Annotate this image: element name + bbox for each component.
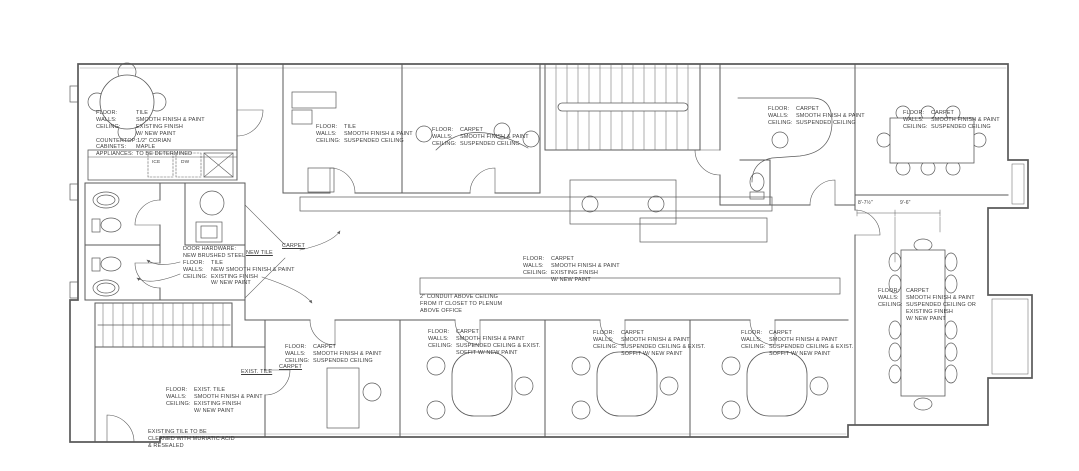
annotation-label: CEILING: xyxy=(741,344,769,358)
annotation-row: CEILING:EXISTING FINISH W/ NEW PAINT xyxy=(523,270,620,284)
annotation-label: FLOOR: xyxy=(316,124,344,131)
room-annotation-conference-right: FLOOR:CARPET WALLS:SMOOTH FINISH & PAINT… xyxy=(878,288,976,322)
dishwasher-label: DW xyxy=(181,160,189,165)
room-annotation-office-bottom-1: FLOOR:CARPET WALLS:SMOOTH FINISH & PAINT… xyxy=(285,344,382,365)
desk xyxy=(327,368,359,428)
annotation-value: SUSPENDED CEILING & EXIST. SOFFIT W/ NEW… xyxy=(621,344,705,358)
annotation-value: MAPLE xyxy=(136,144,155,151)
annotation-label: WALLS: xyxy=(183,267,211,274)
annotation-value: CARPET xyxy=(769,330,792,337)
annotation-label: NEW BRUSHED STEEL xyxy=(183,253,245,260)
annotation-label: CEILING: xyxy=(428,343,456,357)
chair xyxy=(363,383,381,401)
annotation-label: FLOOR: xyxy=(523,256,551,263)
chair xyxy=(427,357,445,375)
annotation-label: WALLS: xyxy=(432,134,460,141)
annotation-row: FLOOR:TILE xyxy=(183,260,295,267)
chair xyxy=(889,321,901,339)
annotation-row: COUNTERTOP:1/2" CORIAN xyxy=(96,138,205,145)
room-annotation-entry: FLOOR:EXIST. TILE WALLS:SMOOTH FINISH & … xyxy=(166,387,263,415)
cabinet xyxy=(292,110,312,124)
room-annotation-corridor: FLOOR:CARPET WALLS:SMOOTH FINISH & PAINT… xyxy=(523,256,620,284)
annotation-value: EXISTING FINISH W/ NEW PAINT xyxy=(194,401,241,415)
ice-maker-label: ICE xyxy=(152,160,160,165)
annotation-label: WALLS: xyxy=(878,295,906,302)
annotation-label: FLOOR: xyxy=(428,329,456,336)
chair xyxy=(889,365,901,383)
annotation-row: FLOOR:CARPET xyxy=(903,110,1000,117)
conference-table-right xyxy=(889,239,957,410)
annotation-row: WALLS:SMOOTH FINISH & PAINT xyxy=(593,337,705,344)
annotation-row: CEILING:SUSPENDED CEILING xyxy=(432,141,529,148)
annotation-value: SMOOTH FINISH & PAINT xyxy=(460,134,529,141)
annotation-row: FLOOR:CARPET xyxy=(878,288,976,295)
chair xyxy=(945,343,957,361)
annotation-label: CEILING: xyxy=(166,401,194,415)
annotation-label: DOOR HARDWARE: xyxy=(183,246,236,253)
room-annotation-office-top-1: FLOOR:TILE WALLS:SMOOTH FINISH & PAINT C… xyxy=(316,124,413,145)
muriatic-acid-note: EXISTING TILE TO BE CLEANED WITH MURIATI… xyxy=(148,429,235,450)
annotation-value: CARPET xyxy=(931,110,954,117)
annotation-row: NEW BRUSHED STEEL xyxy=(183,253,295,260)
chair xyxy=(660,377,678,395)
annotation-value: CARPET xyxy=(906,288,929,295)
chair xyxy=(810,377,828,395)
room-annotation-break-room: FLOOR:TILE WALLS:SMOOTH FINISH & PAINT C… xyxy=(96,110,205,158)
annotation-row: APPLIANCES:TO BE DETERMINED xyxy=(96,151,205,158)
annotation-value: EXISTING FINISH W/ NEW PAINT xyxy=(211,274,258,288)
annotation-value: SMOOTH FINISH & PAINT xyxy=(194,394,263,401)
annotation-row: CABINETS:MAPLE xyxy=(96,144,205,151)
annotation-row: WALLS:SMOOTH FINISH & PAINT xyxy=(741,337,853,344)
desk xyxy=(747,352,807,416)
annotation-label: CEILING: xyxy=(523,270,551,284)
annotation-row: WALLS:SMOOTH FINISH & PAINT xyxy=(316,131,413,138)
annotation-value: SMOOTH FINISH & PAINT xyxy=(906,295,975,302)
room-annotation-reception: FLOOR:CARPET WALLS:SMOOTH FINISH & PAINT… xyxy=(768,106,865,127)
annotation-label: WALLS: xyxy=(523,263,551,270)
conduit-note: 2" CONDUIT ABOVE CEILING FROM IT CLOSET … xyxy=(420,294,502,315)
annotation-value: CARPET xyxy=(796,106,819,113)
credenza xyxy=(292,92,336,108)
annotation-label: FLOOR: xyxy=(593,330,621,337)
chair xyxy=(877,133,891,147)
annotation-value: CARPET xyxy=(456,329,479,336)
room-annotation-office-top-2: FLOOR:CARPET WALLS:SMOOTH FINISH & PAINT… xyxy=(432,127,529,148)
room-annotation-conference-top: FLOOR:CARPET WALLS:SMOOTH FINISH & PAINT… xyxy=(903,110,1000,131)
annotation-label: FLOOR: xyxy=(183,260,211,267)
annotation-row: WALLS:NEW SMOOTH FINISH & PAINT xyxy=(183,267,295,274)
annotation-label: FLOOR: xyxy=(878,288,906,295)
chair xyxy=(889,343,901,361)
annotation-label: CEILING: xyxy=(96,124,136,138)
toilet xyxy=(92,219,100,232)
annotation-value: SUSPENDED CEILING xyxy=(313,358,373,365)
annotation-label: WALLS: xyxy=(428,336,456,343)
floor-plan-drawing xyxy=(0,0,1079,471)
annotation-row: CEILING:SUSPENDED CEILING & EXIST. SOFFI… xyxy=(593,344,705,358)
annotation-value: SMOOTH FINISH & PAINT xyxy=(796,113,865,120)
annotation-row: FLOOR:TILE xyxy=(316,124,413,131)
annotation-label: FLOOR: xyxy=(432,127,460,134)
chair xyxy=(648,196,664,212)
annotation-row: CEILING:SUSPENDED CEILING xyxy=(768,120,865,127)
annotation-value: CARPET xyxy=(551,256,574,263)
annotation-label: FLOOR: xyxy=(96,110,136,117)
annotation-row: WALLS:SMOOTH FINISH & PAINT xyxy=(166,394,263,401)
dimension-label-2: 9'-6" xyxy=(900,200,910,206)
annotation-label: CEILING: xyxy=(768,120,796,127)
annotation-row: FLOOR:CARPET xyxy=(428,329,540,336)
annotation-label: FLOOR: xyxy=(166,387,194,394)
annotation-row: FLOOR:CARPET xyxy=(593,330,705,337)
annotation-row: WALLS:SMOOTH FINISH & PAINT xyxy=(285,351,382,358)
annotation-row: CEILING:EXISTING FINISH W/ NEW PAINT xyxy=(96,124,205,138)
annotation-row: WALLS:SMOOTH FINISH & PAINT xyxy=(523,263,620,270)
annotation-value: SMOOTH FINISH & PAINT xyxy=(621,337,690,344)
chair xyxy=(572,401,590,419)
annotation-label: WALLS: xyxy=(903,117,931,124)
annotation-label: WALLS: xyxy=(768,113,796,120)
annotation-row: FLOOR:EXIST. TILE xyxy=(166,387,263,394)
annotation-value: SUSPENDED CEILING xyxy=(344,138,404,145)
annotation-label: FLOOR: xyxy=(741,330,769,337)
annotation-row: CEILING:SUSPENDED CEILING xyxy=(316,138,413,145)
annotation-row: WALLS:SMOOTH FINISH & PAINT xyxy=(96,117,205,124)
chair xyxy=(582,196,598,212)
annotation-value: SUSPENDED CEILING xyxy=(460,141,520,148)
annotation-label: WALLS: xyxy=(96,117,136,124)
room-annotation-office-bottom-2: FLOOR:CARPET WALLS:SMOOTH FINISH & PAINT… xyxy=(428,329,540,357)
annotation-value: EXISTING FINISH W/ NEW PAINT xyxy=(551,270,598,284)
annotation-label: CEILING: xyxy=(903,124,931,131)
annotation-row: WALLS:SMOOTH FINISH & PAINT xyxy=(768,113,865,120)
room-annotation-office-bottom-4: FLOOR:CARPET WALLS:SMOOTH FINISH & PAINT… xyxy=(741,330,853,358)
floor-label-carpet-upper: CARPET xyxy=(282,243,305,249)
annotation-value: 1/2" CORIAN xyxy=(137,138,171,145)
bay-window xyxy=(1012,164,1024,204)
table xyxy=(901,250,945,396)
annotation-value: TILE xyxy=(344,124,356,131)
annotation-value: TILE xyxy=(136,110,148,117)
annotation-value: EXISTING FINISH W/ NEW PAINT xyxy=(136,124,183,138)
annotation-value: EXIST. TILE xyxy=(194,387,225,394)
stairs-top xyxy=(556,64,688,150)
annotation-row: CEILING:EXISTING FINISH W/ NEW PAINT xyxy=(183,274,295,288)
annotation-label: CEILING: xyxy=(316,138,344,145)
annotation-value: SUSPENDED CEILING xyxy=(796,120,856,127)
annotation-value: SMOOTH FINISH & PAINT xyxy=(931,117,1000,124)
annotation-value: SUSPENDED CEILING OR EXISTING FINISH W/ … xyxy=(906,302,976,323)
annotation-label: COUNTERTOP: xyxy=(96,138,137,145)
annotation-value: SMOOTH FINISH & PAINT xyxy=(456,336,525,343)
annotation-label: WALLS: xyxy=(593,337,621,344)
annotation-row: FLOOR:CARPET xyxy=(285,344,382,351)
annotation-row: FLOOR:CARPET xyxy=(768,106,865,113)
stairs-bottom xyxy=(98,303,230,347)
annotation-row: DOOR HARDWARE: xyxy=(183,246,295,253)
annotation-label: WALLS: xyxy=(166,394,194,401)
annotation-value: SMOOTH FINISH & PAINT xyxy=(769,337,838,344)
annotation-value: SUSPENDED CEILING xyxy=(931,124,991,131)
annotation-value: SMOOTH FINISH & PAINT xyxy=(313,351,382,358)
annotation-label: APPLIANCES: xyxy=(96,151,136,158)
annotation-label: WALLS: xyxy=(741,337,769,344)
annotation-row: WALLS:SMOOTH FINISH & PAINT xyxy=(878,295,976,302)
annotation-value: CARPET xyxy=(460,127,483,134)
annotation-value: SUSPENDED CEILING & EXIST. SOFFIT W/ NEW… xyxy=(456,343,540,357)
dimension-label-1: 8'-7½" xyxy=(858,200,873,206)
annotation-value: CARPET xyxy=(313,344,336,351)
annotation-value: TILE xyxy=(211,260,223,267)
wall-pilasters xyxy=(70,86,78,298)
annotation-row: FLOOR:CARPET xyxy=(432,127,529,134)
annotation-label: WALLS: xyxy=(316,131,344,138)
chair xyxy=(945,365,957,383)
annotation-row: WALLS:SMOOTH FINISH & PAINT xyxy=(432,134,529,141)
floor-label-new-tile: NEW TILE xyxy=(246,250,273,256)
floor-label-exist-tile: EXIST. TILE xyxy=(241,369,272,375)
desk xyxy=(452,352,512,416)
annotation-label: CABINETS: xyxy=(96,144,136,151)
chair xyxy=(427,401,445,419)
annotation-value: CARPET xyxy=(621,330,644,337)
room-annotation-office-bottom-3: FLOOR:CARPET WALLS:SMOOTH FINISH & PAINT… xyxy=(593,330,705,358)
floor-plan: FLOOR:TILE WALLS:SMOOTH FINISH & PAINT C… xyxy=(0,0,1079,471)
annotation-row: FLOOR:CARPET xyxy=(523,256,620,263)
annotation-label: CEILING: xyxy=(183,274,211,288)
annotation-value: SUSPENDED CEILING & EXIST. SOFFIT W/ NEW… xyxy=(769,344,853,358)
annotation-value: NEW SMOOTH FINISH & PAINT xyxy=(211,267,295,274)
chair xyxy=(945,253,957,271)
annotation-label: FLOOR: xyxy=(768,106,796,113)
annotation-row: WALLS:SMOOTH FINISH & PAINT xyxy=(428,336,540,343)
annotation-row: FLOOR:TILE xyxy=(96,110,205,117)
bay-window xyxy=(992,299,1028,374)
annotation-row: CEILING:SUSPENDED CEILING OR EXISTING FI… xyxy=(878,302,976,323)
chair xyxy=(914,398,932,410)
annotation-value: SMOOTH FINISH & PAINT xyxy=(551,263,620,270)
annotation-label: CEILING: xyxy=(593,344,621,358)
annotation-label: FLOOR: xyxy=(285,344,313,351)
mop-sink xyxy=(200,191,224,215)
chair xyxy=(914,239,932,251)
chair xyxy=(722,401,740,419)
annotation-row: CEILING:SUSPENDED CEILING & EXIST. SOFFI… xyxy=(428,343,540,357)
chair xyxy=(416,126,432,142)
annotation-label: WALLS: xyxy=(285,351,313,358)
annotation-row: FLOOR:CARPET xyxy=(741,330,853,337)
annotation-row: CEILING:EXISTING FINISH W/ NEW PAINT xyxy=(166,401,263,415)
floor-label-carpet-lower: CARPET xyxy=(279,364,302,370)
annotation-value: SMOOTH FINISH & PAINT xyxy=(344,131,413,138)
chair xyxy=(722,357,740,375)
floor-sink xyxy=(196,222,222,242)
chair xyxy=(772,132,788,148)
annotation-value: TO BE DETERMINED xyxy=(136,151,192,158)
annotation-value: SMOOTH FINISH & PAINT xyxy=(136,117,205,124)
chair xyxy=(572,357,590,375)
desk xyxy=(597,352,657,416)
annotation-row: CEILING:SUSPENDED CEILING & EXIST. SOFFI… xyxy=(741,344,853,358)
chair xyxy=(945,321,957,339)
chair xyxy=(515,377,533,395)
annotation-label: FLOOR: xyxy=(903,110,931,117)
annotation-row: CEILING:SUSPENDED CEILING xyxy=(903,124,1000,131)
annotation-label: CEILING: xyxy=(878,302,906,323)
room-annotation-hall: DOOR HARDWARE: NEW BRUSHED STEEL FLOOR:T… xyxy=(183,246,295,287)
annotation-label: CEILING: xyxy=(432,141,460,148)
toilet xyxy=(92,258,100,271)
annotation-row: WALLS:SMOOTH FINISH & PAINT xyxy=(903,117,1000,124)
